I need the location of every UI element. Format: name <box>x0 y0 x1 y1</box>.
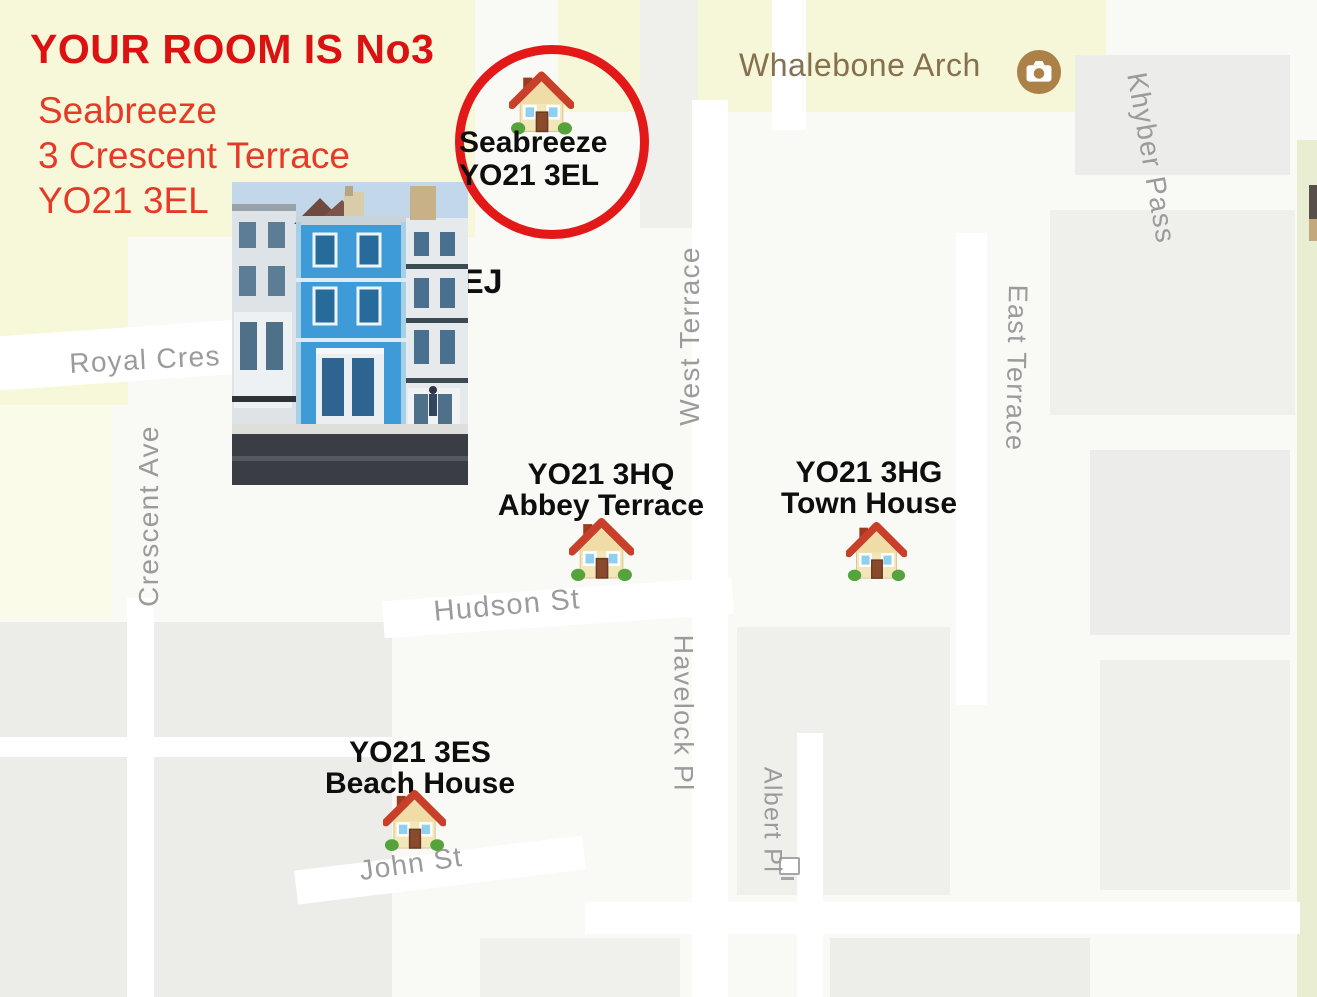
property-postcode: YO21 3ES <box>325 737 515 768</box>
map-building-block <box>480 938 680 997</box>
seabreeze-marker-postcode: YO21 3EL <box>459 159 607 192</box>
property-label-town-house: YO21 3HG Town House <box>781 457 957 519</box>
map-building-block <box>1090 450 1290 635</box>
annotated-map: Royal Cres Crescent Ave West Terrace Eas… <box>0 0 1317 997</box>
road <box>585 902 1300 934</box>
road-west-terrace <box>692 100 728 997</box>
street-label-albert-pl: Albert Pl <box>758 767 787 873</box>
map-building-block <box>830 938 1090 997</box>
road-crescent-ave <box>127 598 154 997</box>
seabreeze-building-photo <box>232 182 468 485</box>
house-icon-abbey-terrace <box>569 516 634 583</box>
road-albert-pl <box>797 733 823 997</box>
camera-icon <box>1016 49 1062 95</box>
property-postcode: YO21 3HQ <box>498 459 704 490</box>
address-line-street: 3 Crescent Terrace <box>38 133 350 178</box>
seabreeze-marker-name: Seabreeze <box>459 126 607 159</box>
address-line-postcode: YO21 3EL <box>38 178 350 223</box>
house-icon-town-house <box>846 520 907 583</box>
map-building-block <box>640 0 698 228</box>
street-label-east-terrace: East Terrace <box>999 284 1033 451</box>
map-green-strip <box>1297 140 1317 997</box>
house-icon-beach-house <box>383 788 446 853</box>
property-postcode: YO21 3HG <box>781 457 957 488</box>
address-block: Seabreeze 3 Crescent Terrace YO21 3EL <box>38 88 350 223</box>
street-label-havelock-pl: Havelock Pl <box>668 635 699 792</box>
street-label-west-terrace: West Terrace <box>674 246 706 426</box>
room-heading: YOUR ROOM IS No3 <box>30 26 434 73</box>
seabreeze-marker-label: Seabreeze YO21 3EL <box>459 126 607 192</box>
property-name: Town House <box>781 488 957 519</box>
map-area-yellow <box>0 405 112 620</box>
map-small-structure-icon <box>781 877 794 880</box>
property-label-abbey-terrace: YO21 3HQ Abbey Terrace <box>498 459 704 521</box>
poi-label-whalebone-arch: Whalebone Arch <box>739 47 981 84</box>
edge-image-fragment <box>1309 219 1317 241</box>
road-east-terrace <box>956 233 987 705</box>
map-building-block <box>0 622 392 997</box>
map-building-block <box>1100 660 1290 890</box>
street-label-crescent-ave: Crescent Ave <box>133 425 165 607</box>
map-building-block <box>1075 55 1290 175</box>
address-line-name: Seabreeze <box>38 88 350 133</box>
edge-image-fragment <box>1309 185 1317 219</box>
